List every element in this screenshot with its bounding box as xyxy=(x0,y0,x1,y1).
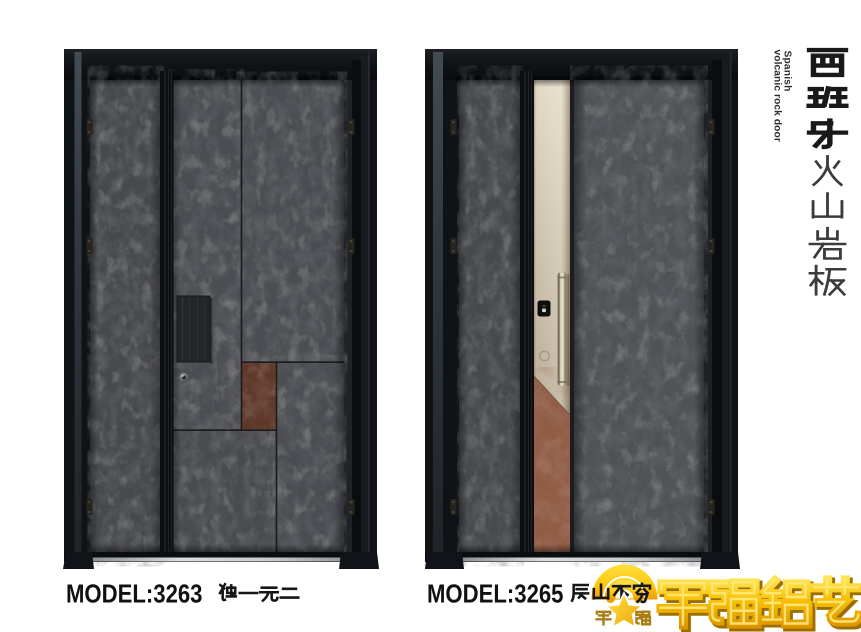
svg-text:volcanic rock door: volcanic rock door xyxy=(771,50,782,142)
svg-text:MODEL:3265: MODEL:3265 xyxy=(427,579,564,609)
svg-text:MODEL:3263: MODEL:3263 xyxy=(66,579,203,609)
